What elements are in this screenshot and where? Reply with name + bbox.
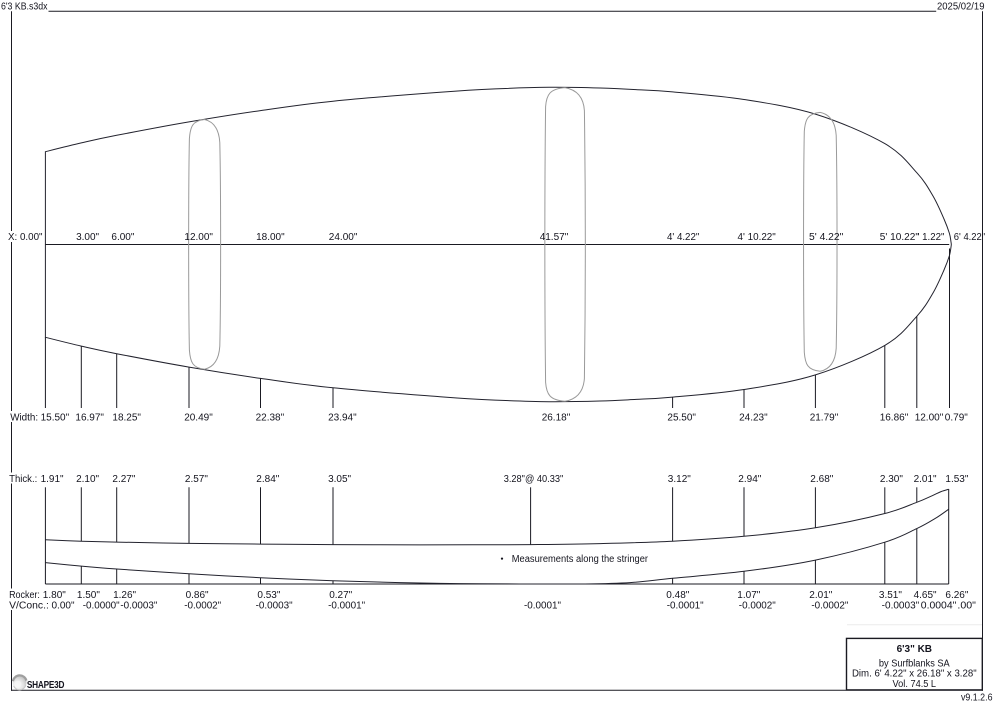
- svg-text:1.07": 1.07": [737, 590, 760, 601]
- svg-text:1.53": 1.53": [945, 474, 968, 485]
- svg-text:V/Conc.:: V/Conc.:: [9, 600, 49, 611]
- svg-text:4' 10.22": 4' 10.22": [738, 232, 777, 243]
- svg-text:20.49": 20.49": [184, 412, 213, 423]
- svg-text:21.79": 21.79": [810, 412, 839, 423]
- svg-text:-0.0003": -0.0003": [120, 600, 157, 611]
- svg-text:' 1.22": ' 1.22": [918, 232, 945, 243]
- svg-text:18.00": 18.00": [256, 232, 285, 243]
- svg-text:X: 0.00": X: 0.00": [8, 232, 43, 243]
- svg-text:-0.0001": -0.0001": [328, 600, 365, 611]
- svg-text:16.97": 16.97": [75, 412, 104, 423]
- svg-text:18.25": 18.25": [112, 412, 141, 423]
- svg-text:Vol. 74.5 L: Vol. 74.5 L: [893, 679, 937, 690]
- svg-text:23.94": 23.94": [328, 412, 357, 423]
- svg-text:2.68": 2.68": [810, 474, 833, 485]
- svg-text:3.51": 3.51": [879, 590, 902, 601]
- svg-text:6' 4.22": 6' 4.22": [954, 232, 986, 243]
- svg-text:0.53": 0.53": [257, 590, 280, 601]
- svg-text:6'3 KB.s3dx: 6'3 KB.s3dx: [1, 2, 48, 13]
- svg-text:3.28"@ 40.33": 3.28"@ 40.33": [504, 474, 564, 485]
- svg-text:6'3" KB: 6'3" KB: [897, 644, 932, 655]
- svg-text:Measurements along the stringe: Measurements along the stringer: [512, 554, 649, 565]
- svg-text:2.01": 2.01": [914, 474, 937, 485]
- svg-text:1.50": 1.50": [77, 590, 100, 601]
- svg-text:Width:: Width:: [10, 412, 38, 423]
- svg-text:2.94": 2.94": [738, 474, 761, 485]
- svg-text:-0.0000": -0.0000": [83, 600, 120, 611]
- svg-text:6.26": 6.26": [945, 590, 968, 601]
- svg-text:SHAPE3D: SHAPE3D: [27, 680, 64, 691]
- svg-text:.00": .00": [957, 600, 976, 611]
- svg-text:3.00": 3.00": [76, 232, 99, 243]
- svg-text:Dim. 6' 4.22" x 26.18" x 3.28": Dim. 6' 4.22" x 26.18" x 3.28": [852, 669, 977, 680]
- svg-text:v9.1.2.6: v9.1.2.6: [961, 692, 993, 702]
- svg-text:24.23": 24.23": [739, 412, 768, 423]
- svg-text:2025/02/19: 2025/02/19: [937, 2, 985, 13]
- svg-text:15.50": 15.50": [41, 412, 70, 423]
- svg-text:4' 4.22": 4' 4.22": [667, 232, 700, 243]
- svg-text:2.84": 2.84": [256, 474, 279, 485]
- svg-text:0.27": 0.27": [329, 590, 352, 601]
- svg-text:Thick.:: Thick.:: [9, 474, 37, 485]
- svg-text:24.00": 24.00": [329, 232, 358, 243]
- svg-text:2.01": 2.01": [809, 590, 832, 601]
- svg-text:-0.0003": -0.0003": [882, 600, 920, 611]
- svg-text:25.50": 25.50": [667, 412, 696, 423]
- svg-text:12.00": 12.00": [184, 232, 213, 243]
- svg-text:-0.0001": -0.0001": [524, 600, 561, 611]
- svg-text:41.57": 41.57": [540, 232, 569, 243]
- svg-text:22.38": 22.38": [256, 412, 285, 423]
- svg-text:2.10": 2.10": [76, 474, 99, 485]
- svg-text:2.57": 2.57": [185, 474, 208, 485]
- svg-text:0.79": 0.79": [945, 412, 968, 423]
- svg-text:0.48": 0.48": [666, 590, 689, 601]
- svg-text:-0.0002": -0.0002": [184, 600, 221, 611]
- svg-text:12.00": 12.00": [915, 412, 944, 423]
- svg-text:3.12": 3.12": [668, 474, 691, 485]
- svg-text:5' 10.22": 5' 10.22": [880, 232, 920, 243]
- svg-text:1.26": 1.26": [113, 590, 136, 601]
- svg-text:6.00": 6.00": [111, 232, 134, 243]
- svg-text:1.91": 1.91": [41, 474, 64, 485]
- svg-text:0.00": 0.00": [52, 600, 75, 611]
- svg-text:26.18": 26.18": [542, 412, 571, 423]
- svg-text:0.0004": 0.0004": [921, 600, 957, 611]
- svg-text:2.27": 2.27": [112, 474, 135, 485]
- svg-text:3.05": 3.05": [328, 474, 351, 485]
- svg-text:0.86": 0.86": [186, 590, 209, 601]
- svg-text:5' 4.22": 5' 4.22": [809, 232, 844, 243]
- svg-text:-0.0003": -0.0003": [256, 600, 293, 611]
- svg-text:16.86": 16.86": [880, 412, 909, 423]
- svg-text:-0.0002": -0.0002": [739, 600, 776, 611]
- svg-text:4.65": 4.65": [914, 590, 937, 601]
- svg-text:2.30": 2.30": [880, 474, 903, 485]
- svg-text:-0.0001": -0.0001": [667, 600, 704, 611]
- svg-text:-0.0002": -0.0002": [811, 600, 848, 611]
